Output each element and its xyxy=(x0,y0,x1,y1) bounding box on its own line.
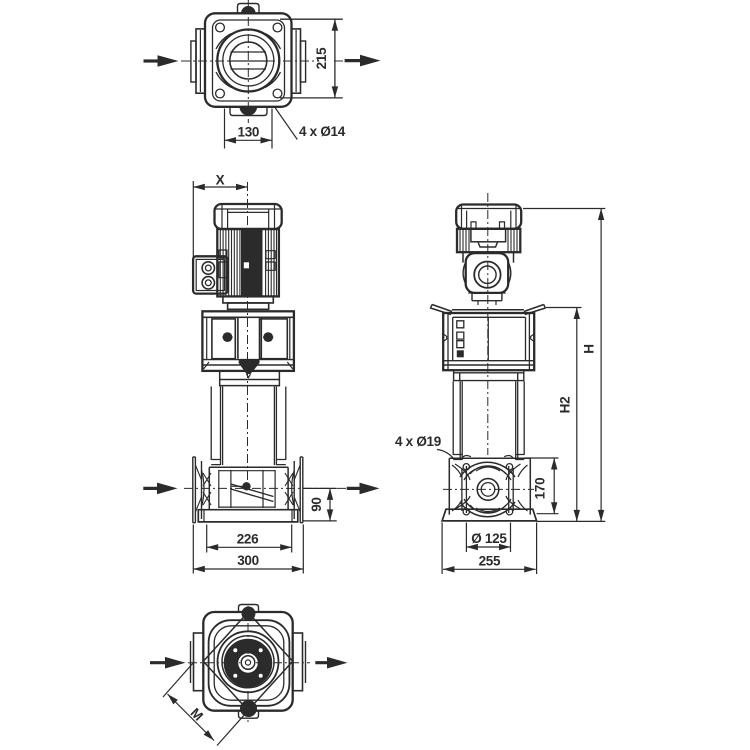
svg-text:226: 226 xyxy=(237,532,259,547)
svg-text:90: 90 xyxy=(309,497,324,511)
svg-text:H: H xyxy=(582,344,597,353)
svg-text:Ø 125: Ø 125 xyxy=(471,531,507,546)
svg-text:4 x Ø19: 4 x Ø19 xyxy=(395,434,441,449)
svg-text:300: 300 xyxy=(237,553,259,568)
svg-text:170: 170 xyxy=(533,478,548,500)
svg-text:X: X xyxy=(216,173,225,188)
svg-text:H2: H2 xyxy=(557,397,572,414)
svg-text:215: 215 xyxy=(314,47,329,69)
svg-text:130: 130 xyxy=(237,125,259,140)
svg-text:255: 255 xyxy=(479,554,501,569)
svg-text:4 x Ø14: 4 x Ø14 xyxy=(299,124,346,139)
svg-text:M: M xyxy=(188,705,206,723)
